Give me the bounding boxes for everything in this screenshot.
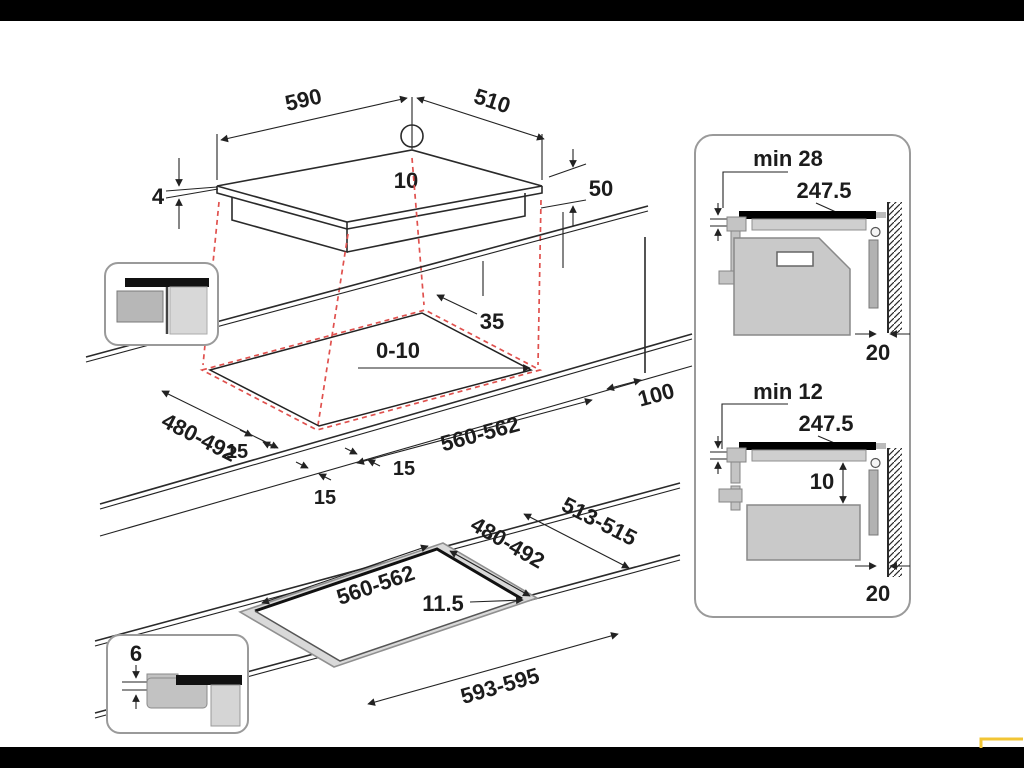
hob-underside (752, 450, 866, 461)
legend-inset-flush: 6 (107, 635, 248, 733)
dim-hob-width: 590 (283, 83, 324, 116)
dim-margin-mid: 15 (314, 487, 336, 509)
dim-hob-depth: 510 (471, 83, 514, 118)
cabinet-block (170, 287, 207, 334)
dim-rebate-width: 11.5 (422, 591, 464, 616)
dim-margin-right: 15 (393, 458, 415, 480)
installation-diagram: 10 590 510 4 50 (0, 0, 1024, 768)
dim-recess-depth: 6 (130, 641, 142, 666)
letterbox-top (0, 0, 1024, 21)
letterbox-bottom (0, 747, 1024, 768)
clearance-panel: min 28 247.5 20 min 12 (695, 135, 910, 617)
drawer-body (747, 505, 860, 560)
dim-hob-depth: 247.5 (796, 178, 851, 203)
hob-section (739, 211, 876, 219)
projection-lines (203, 158, 541, 425)
oven-vent (777, 252, 813, 266)
worktop-bar (176, 675, 242, 685)
dim-min-gap: min 12 (753, 379, 823, 404)
worktop-bar (125, 278, 209, 287)
hob-glass-top (217, 150, 542, 222)
dim-hob-depth: 247.5 (798, 411, 853, 436)
dim-rear-gap: 20 (866, 581, 890, 606)
dim-rear-gap: 20 (866, 340, 890, 365)
hob-isometric-view: 10 590 510 4 50 (152, 83, 613, 425)
dim-back-gap: 0-10 (376, 338, 420, 363)
dim-min-gap: min 28 (753, 146, 823, 171)
dim-margin-left: 15 (226, 441, 248, 463)
dim-cutout-width: 560-562 (438, 411, 522, 456)
oven-block (117, 291, 163, 322)
wall-hatching (889, 448, 902, 577)
dim-corner-detail: 35 (480, 309, 504, 334)
hob-underside (752, 219, 866, 230)
worktop-cutout-view: 480-492 560-562 0-10 35 15 15 15 100 (86, 206, 692, 536)
dim-glass-thickness: 4 (152, 184, 165, 209)
dim-gap-below: 10 (810, 469, 834, 494)
hob-section (739, 442, 876, 450)
highlight-corner (981, 739, 1023, 748)
dim-outer-width: 593-595 (458, 663, 543, 709)
cabinet-block (211, 685, 240, 726)
installation-sheet: 10 590 510 4 50 (0, 0, 1024, 768)
dim-body-height: 50 (589, 176, 613, 201)
dim-right-clearance: 100 (635, 378, 677, 412)
dim-outer-depth: 513-515 (558, 492, 641, 551)
wall-hatching (889, 202, 902, 333)
legend-inset-oven (105, 263, 218, 345)
